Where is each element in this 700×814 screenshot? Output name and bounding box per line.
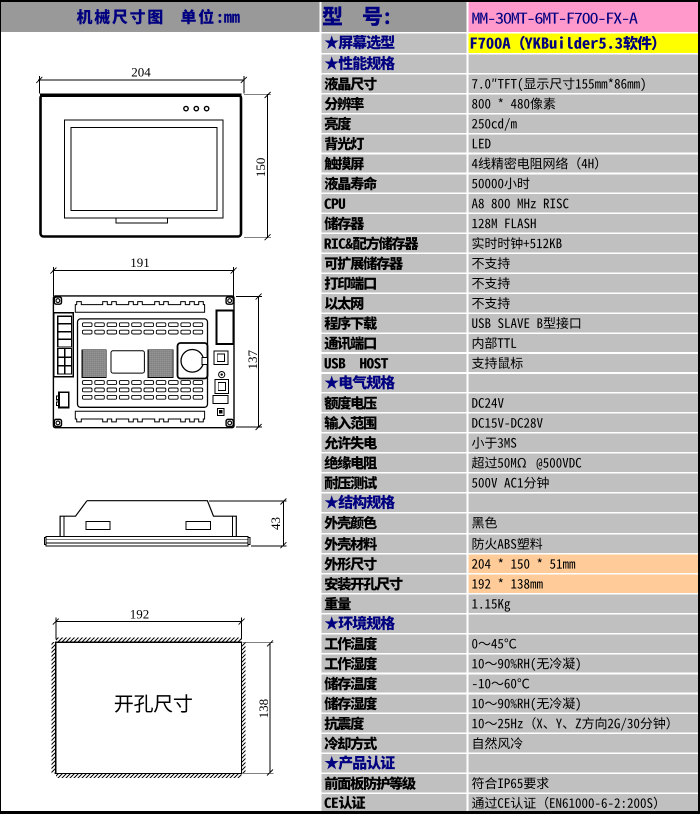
svg-text:191: 191 — [130, 255, 150, 270]
svg-text:137: 137 — [245, 350, 260, 370]
svg-text:43: 43 — [268, 517, 283, 530]
svg-text:138: 138 — [256, 699, 271, 719]
svg-text:192: 192 — [130, 607, 150, 622]
svg-text:204: 204 — [131, 65, 151, 80]
svg-text:150: 150 — [253, 158, 268, 178]
